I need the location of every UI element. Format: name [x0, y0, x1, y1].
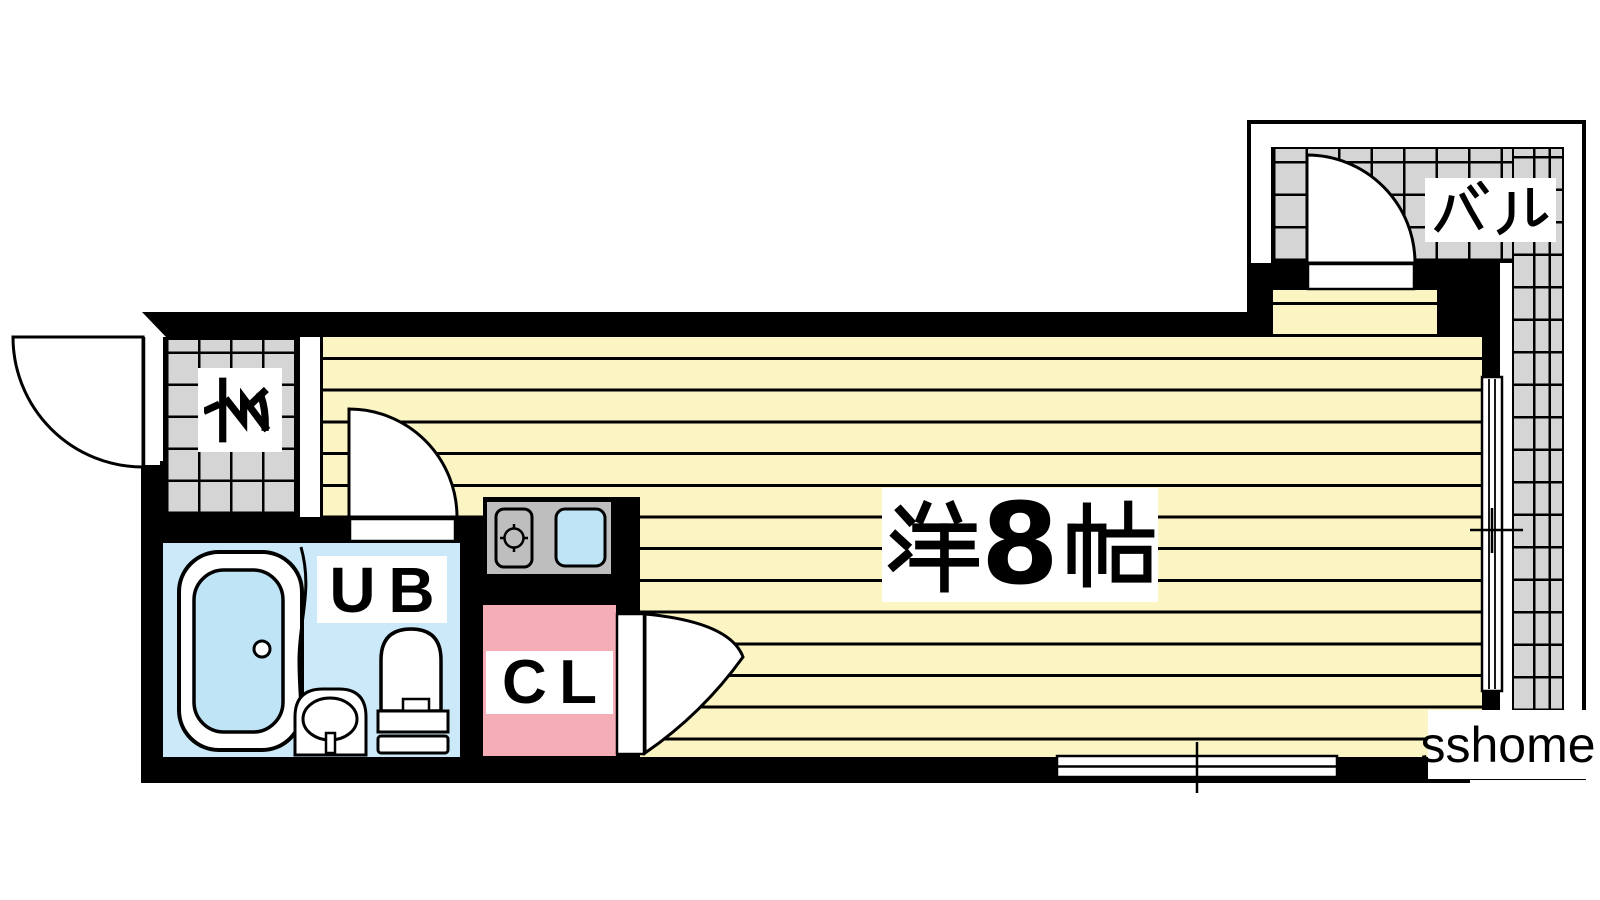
entrance-door-arc — [13, 337, 144, 467]
floorplan: 玄 UB CL 8 洋8帖 — [0, 0, 1600, 900]
kanji-jou-icon — [1061, 497, 1157, 593]
room-size-number: 8 — [981, 488, 1059, 602]
watermark: sshome — [1428, 710, 1588, 779]
balcony-door-arc — [1307, 155, 1415, 289]
kana-ba-icon — [1431, 181, 1489, 239]
kitchen-sink — [556, 509, 605, 566]
closet-label: CL — [486, 651, 613, 714]
window-right — [1470, 377, 1523, 691]
closet-door-arc — [617, 614, 743, 754]
kana-ru-icon — [1493, 181, 1551, 239]
window-bottom — [1057, 742, 1337, 793]
unit-bath-label: UB — [317, 556, 447, 623]
toilet — [378, 629, 448, 753]
entrance-label: 玄 — [198, 368, 282, 452]
kanji-you-icon — [883, 497, 979, 593]
balcony-label: バル — [1425, 178, 1556, 242]
bath-door-arc — [349, 409, 457, 541]
washbasin — [295, 689, 366, 755]
bathtub — [179, 547, 306, 752]
main-room-label: 8 洋8帖 — [882, 488, 1158, 602]
wall-miter — [142, 312, 166, 337]
stove-burner — [496, 509, 532, 567]
kanji-gen-icon — [204, 374, 276, 446]
